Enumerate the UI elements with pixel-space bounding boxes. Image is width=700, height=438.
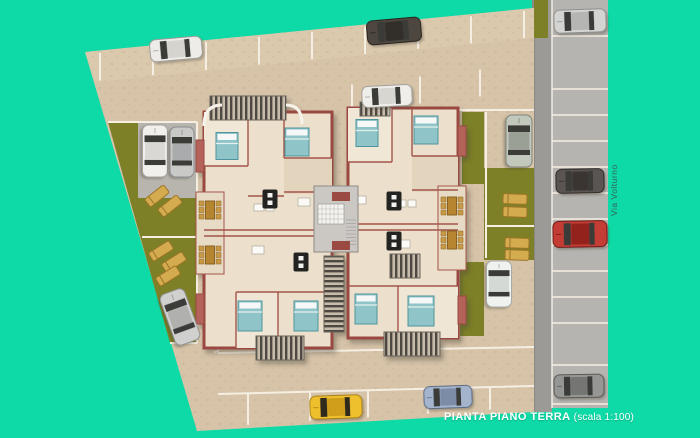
bed-7 <box>355 294 377 324</box>
balcony-right-lower <box>458 296 466 324</box>
plan-title-main: PIANTA PIANO TERRA <box>444 411 570 423</box>
pergola-left-bottom <box>256 336 304 360</box>
plan-scale-text: (scala 1:100) <box>574 412 634 423</box>
car-gray-road-bottom <box>554 374 604 398</box>
table-dark-2 <box>294 253 309 272</box>
dining-table-3 <box>441 197 463 215</box>
car-white-right-lower <box>487 261 512 307</box>
road-label: Via Volturno <box>609 164 619 216</box>
road-via-volturno <box>532 0 608 412</box>
bed-8 <box>408 296 434 326</box>
dining-table-2 <box>199 246 221 264</box>
balcony-left-lower <box>196 294 204 324</box>
sun-lounger-6 <box>503 194 527 205</box>
table-dark-3 <box>387 192 402 211</box>
car-dark-gray-top-bay <box>366 17 422 46</box>
pergola-right-mid <box>390 254 420 278</box>
car-red-road <box>553 221 607 248</box>
dining-table-1 <box>199 201 221 219</box>
bed-1 <box>216 133 238 160</box>
bed-5 <box>356 120 378 147</box>
balcony-left-upper <box>196 140 204 172</box>
sun-lounger-7 <box>503 207 527 218</box>
sun-lounger-9 <box>505 250 529 261</box>
bed-3 <box>238 301 262 331</box>
car-white-second-row <box>361 84 412 108</box>
balcony-right-upper <box>458 126 466 156</box>
stair-core <box>314 186 358 252</box>
car-white-left-garden <box>143 125 168 177</box>
bed-6 <box>414 116 438 144</box>
dining-table-4 <box>441 231 463 249</box>
car-yellow-bottom-bay <box>310 395 363 420</box>
table-dark-4 <box>387 232 402 251</box>
car-gray-road-top <box>554 9 607 34</box>
pergola-left-top <box>210 96 286 120</box>
bed-2 <box>285 128 309 156</box>
plan-title: PIANTA PIANO TERRA (scala 1:100) <box>398 411 680 423</box>
car-white-top-left-bay <box>149 36 203 62</box>
car-blue-bottom-bay <box>424 385 473 409</box>
car-silver-left-garden <box>170 127 194 177</box>
car-silver-green-right-top <box>506 115 532 167</box>
table-dark-1 <box>263 190 278 209</box>
bed-4 <box>294 301 318 331</box>
car-dark-gray-road <box>556 169 604 194</box>
pergola-left-side <box>324 256 344 332</box>
sun-lounger-8 <box>505 238 529 249</box>
site-plan: Via Volturno PIANTA PIANO TERRA (scala 1… <box>0 0 700 438</box>
pergola-right-bottom <box>384 332 440 356</box>
